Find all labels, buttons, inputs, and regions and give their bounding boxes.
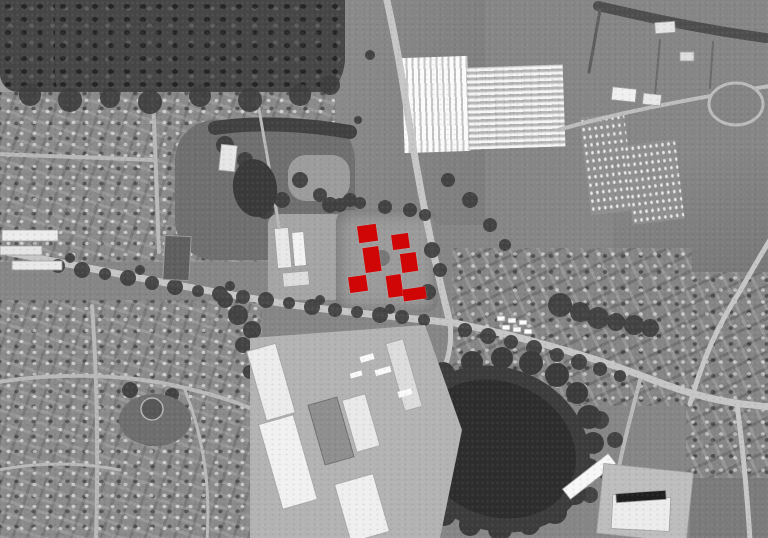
highlighted-building-marker: [348, 275, 368, 293]
highlighted-building-marker: [356, 223, 377, 242]
aerial-photo-canvas: [0, 0, 768, 538]
highlighted-building-marker: [385, 274, 403, 297]
highlighted-building-marker: [362, 246, 381, 273]
highlighted-building-marker: [403, 287, 427, 302]
highlight-marker-layer: [0, 0, 768, 538]
highlighted-building-marker: [391, 232, 410, 249]
highlighted-building-marker: [400, 252, 418, 272]
